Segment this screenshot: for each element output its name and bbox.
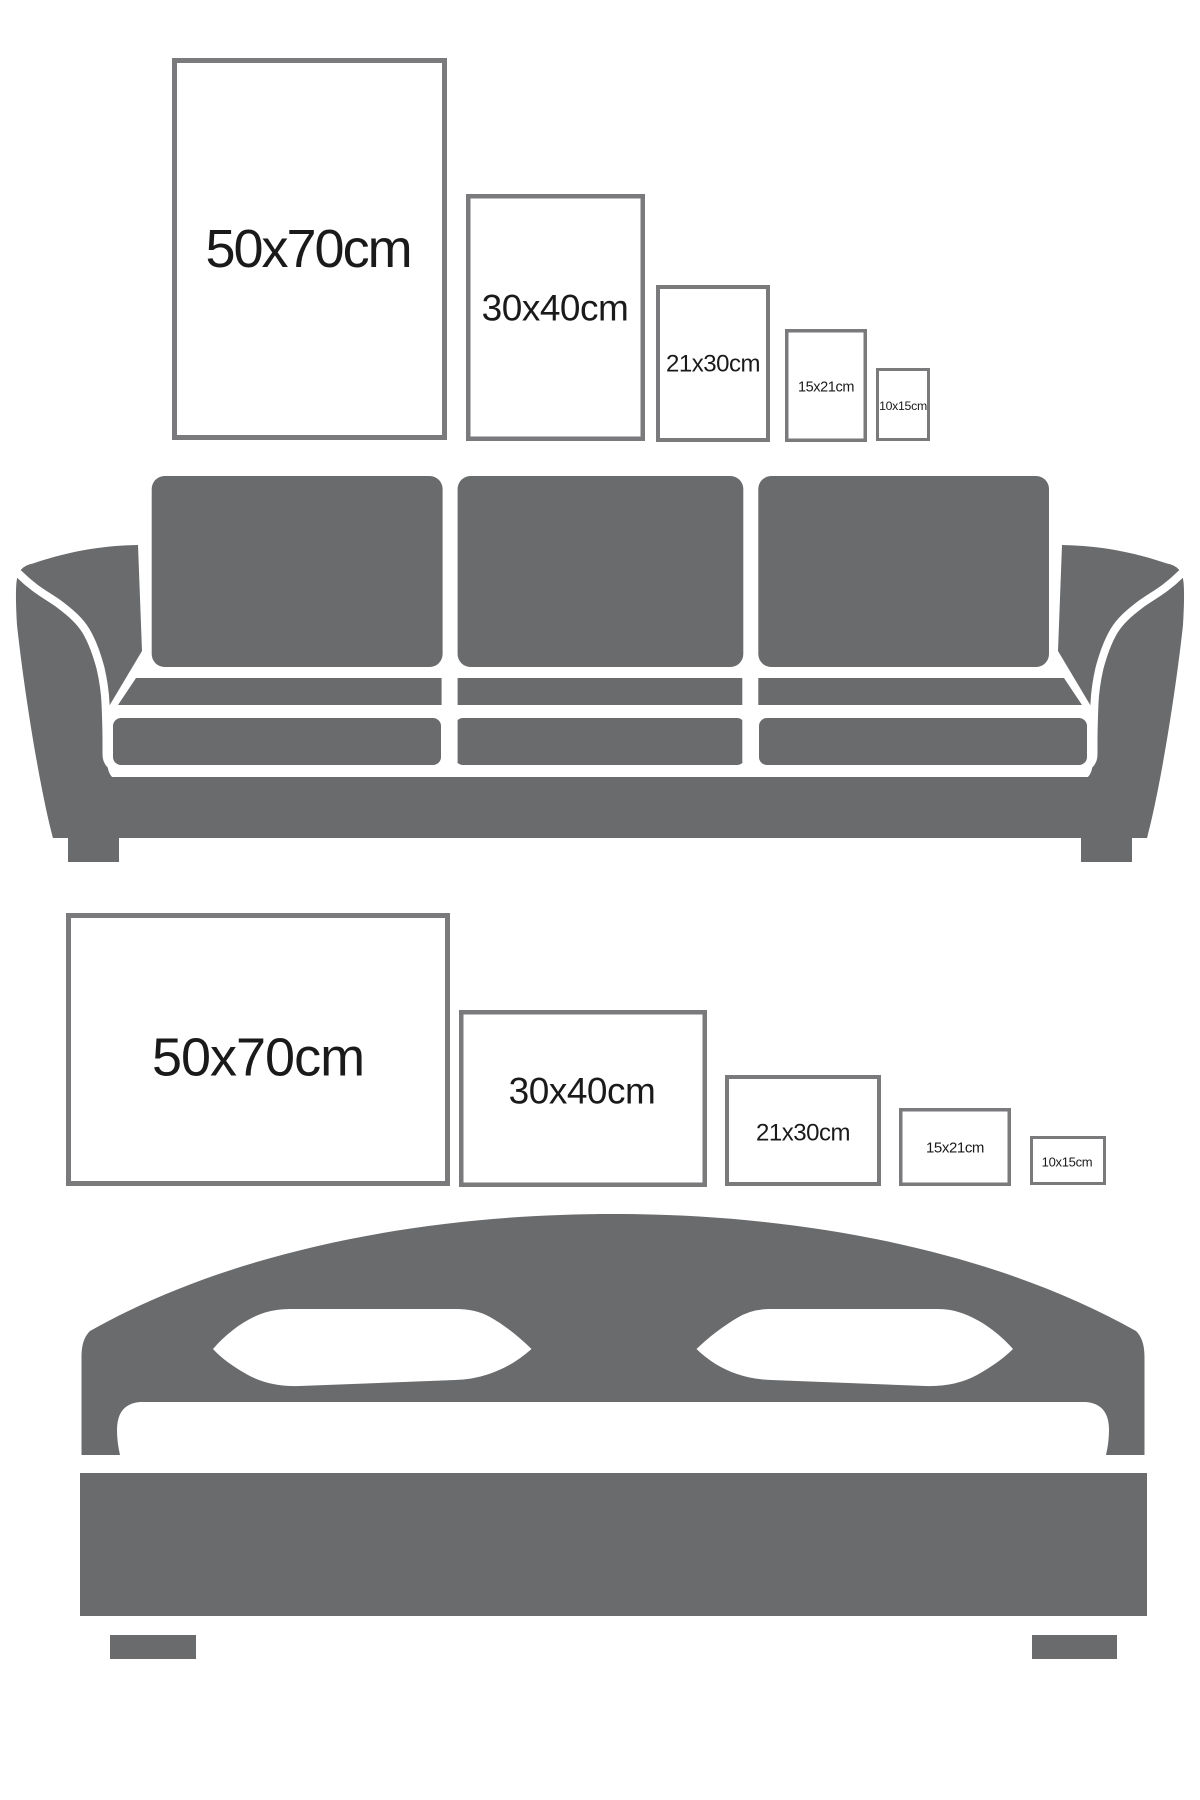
svg-text:15x21cm: 15x21cm	[926, 1140, 984, 1157]
svg-text:50x70cm: 50x70cm	[152, 1028, 364, 1088]
svg-text:10x15cm: 10x15cm	[1042, 1155, 1093, 1170]
svg-text:50x70cm: 50x70cm	[205, 219, 410, 279]
svg-text:30x40cm: 30x40cm	[509, 1071, 656, 1112]
svg-text:10x15cm: 10x15cm	[879, 399, 927, 413]
svg-text:30x40cm: 30x40cm	[482, 288, 629, 329]
svg-text:21x30cm: 21x30cm	[666, 351, 760, 378]
svg-text:15x21cm: 15x21cm	[798, 379, 854, 395]
svg-text:21x30cm: 21x30cm	[756, 1120, 850, 1147]
